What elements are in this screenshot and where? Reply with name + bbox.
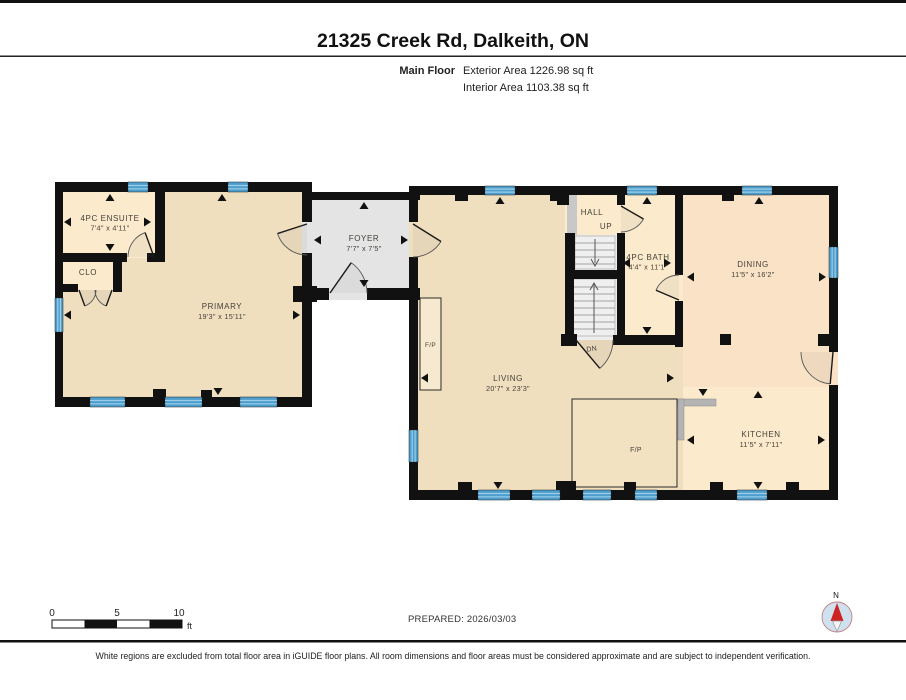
window: [737, 490, 767, 500]
wall: [565, 270, 617, 279]
kitchen-counter: [678, 399, 684, 440]
compass: N: [822, 591, 852, 632]
page-title: 21325 Creek Rd, Dalkeith, ON: [317, 30, 589, 52]
wall: [302, 253, 312, 407]
window: [240, 397, 277, 407]
wall: [155, 192, 165, 262]
wall: [302, 192, 420, 200]
scale-tick-0: 0: [49, 608, 55, 619]
wall-post: [201, 390, 212, 398]
stairs-down-label: DN: [586, 345, 598, 353]
wall-post: [818, 334, 833, 346]
window: [228, 182, 248, 192]
wall: [409, 186, 418, 222]
bath-name: 4PC BATH: [626, 253, 669, 262]
floor-label: Main Floor: [399, 65, 455, 77]
dining-name: DINING: [737, 260, 769, 269]
wall: [675, 186, 683, 275]
bath-dims: 4'4" x 11'1": [628, 263, 667, 272]
scale-bar-segment: [150, 620, 183, 628]
wall-post: [710, 482, 723, 491]
wall: [113, 258, 122, 292]
fireplace-label-2: F/P: [630, 447, 642, 454]
window: [409, 430, 418, 462]
top-border: [0, 0, 906, 3]
foyer-dims: 7'7" x 7'5": [346, 244, 381, 253]
wall: [617, 195, 625, 205]
room-label-dining: DINING 11'5" x 16'2": [731, 260, 774, 279]
floorplan-canvas: 21325 Creek Rd, Dalkeith, ON Main Floor …: [0, 0, 906, 700]
prepared-date: PREPARED: 2026/03/03: [408, 614, 516, 625]
wall: [409, 257, 418, 500]
room-label-closet: CLO: [79, 268, 97, 277]
hall-name: HALL: [581, 208, 603, 217]
wall-post: [786, 482, 799, 491]
window: [478, 490, 510, 500]
primary-dims: 19'3" x 15'11": [198, 312, 246, 321]
scale-bar-segment: [85, 620, 118, 628]
wall-post: [556, 481, 576, 491]
wall: [613, 335, 683, 345]
stairs-up-label: UP: [600, 222, 612, 231]
living-name: LIVING: [493, 374, 523, 383]
window: [829, 247, 838, 278]
scale-tick-10: 10: [173, 608, 185, 619]
wall: [55, 284, 78, 292]
room-label-foyer: FOYER 7'7" x 7'5": [346, 234, 381, 253]
scale-tick-5: 5: [114, 608, 120, 619]
wall: [55, 182, 63, 407]
wall-post: [455, 195, 468, 201]
kitchen-dims: 11'5" x 7'11": [740, 440, 783, 449]
interior-area: Interior Area 1103.38 sq ft: [463, 82, 589, 94]
window: [532, 490, 560, 500]
scale-bar: 0 5 10 ft: [49, 608, 192, 631]
footer-rule: [0, 640, 906, 643]
wall: [302, 182, 312, 222]
window: [627, 186, 657, 195]
exterior-area: Exterior Area 1226.98 sq ft: [463, 65, 593, 77]
fireplace-label-1: F/P: [425, 342, 436, 349]
wall: [617, 233, 625, 345]
room-label-bath: 4PC BATH 4'4" x 11'1": [626, 253, 669, 272]
wall-post: [550, 195, 563, 201]
ensuite-name: 4PC ENSUITE: [80, 214, 139, 223]
room-label-primary: PRIMARY 19'3" x 15'11": [198, 302, 246, 321]
window: [165, 397, 202, 407]
window: [635, 490, 657, 500]
disclaimer-text: White regions are excluded from total fl…: [96, 651, 811, 661]
dining-dims: 11'5" x 16'2": [731, 270, 774, 279]
wall: [565, 233, 575, 273]
window: [485, 186, 515, 195]
window: [128, 182, 148, 192]
wall: [409, 186, 838, 195]
wall: [829, 186, 838, 247]
foyer-name: FOYER: [349, 234, 380, 243]
wall-post: [153, 389, 166, 398]
primary-name: PRIMARY: [202, 302, 243, 311]
closet-name: CLO: [79, 268, 97, 277]
room-label-kitchen: KITCHEN 11'5" x 7'11": [740, 430, 783, 449]
window: [90, 397, 125, 407]
ensuite-dims: 7'4" x 4'11": [90, 224, 129, 233]
wall: [675, 301, 683, 347]
wall: [293, 286, 317, 302]
wall-post: [624, 482, 636, 491]
wall: [409, 490, 838, 500]
scale-unit: ft: [187, 621, 193, 631]
title-rule: [0, 56, 906, 58]
window: [55, 298, 63, 332]
compass-north-label: N: [833, 591, 839, 600]
wall-post: [722, 195, 734, 201]
wall-post: [458, 482, 472, 491]
wall-post: [561, 334, 577, 346]
wall: [565, 279, 574, 335]
kitchen-name: KITCHEN: [741, 430, 780, 439]
window: [742, 186, 772, 195]
living-dims: 20'7" x 23'3": [486, 384, 530, 393]
fireplace-box: [572, 399, 677, 487]
wall-post: [720, 334, 731, 345]
wall: [829, 385, 838, 500]
window: [583, 490, 611, 500]
wall: [55, 182, 312, 192]
